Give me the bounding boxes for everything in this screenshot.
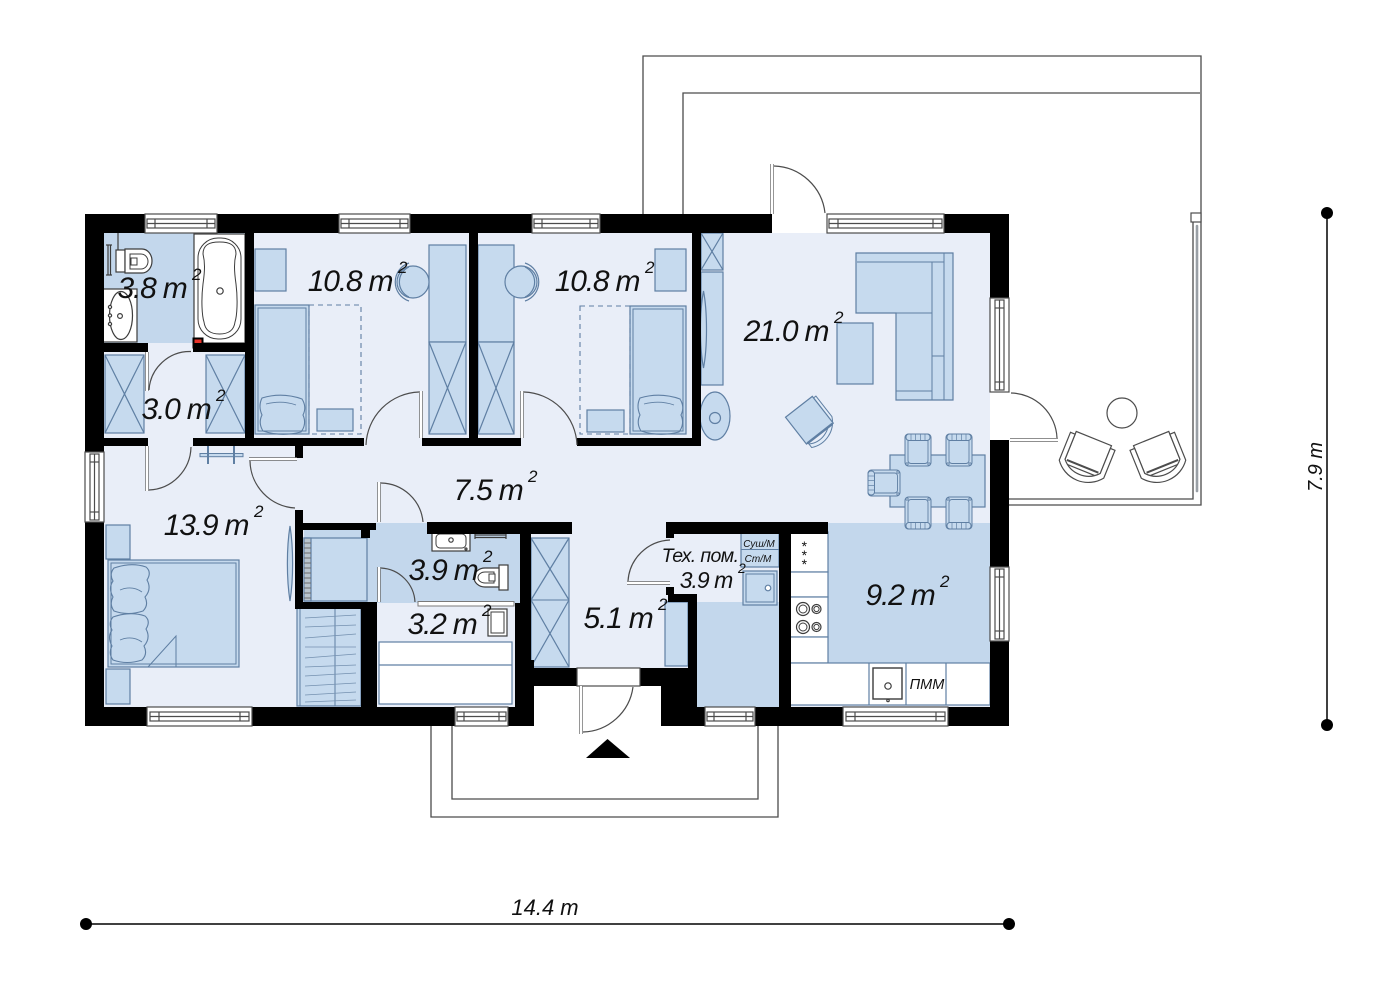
svg-text:7.5 m: 7.5 m [453,474,522,507]
svg-text:3.9 m: 3.9 m [408,554,477,587]
svg-text:14.4 m: 14.4 m [511,895,578,920]
svg-text:9.2 m: 9.2 m [865,579,934,612]
svg-text:Тех. пом.: Тех. пом. [662,545,739,567]
svg-text:2: 2 [527,467,538,486]
svg-text:3.0 m: 3.0 m [141,393,210,426]
svg-text:13.9 m: 13.9 m [164,509,249,542]
svg-text:10.8 m: 10.8 m [555,265,640,298]
svg-text:Суш/М: Суш/М [743,539,775,550]
svg-text:2: 2 [833,308,844,327]
svg-text:Ст/М: Ст/М [745,554,772,565]
svg-text:2: 2 [215,386,226,405]
svg-text:10.8 m: 10.8 m [308,265,393,298]
svg-text:2: 2 [481,601,492,620]
svg-text:2: 2 [253,502,264,521]
svg-text:7.9 m: 7.9 m [1305,442,1327,492]
svg-text:2: 2 [191,265,202,284]
svg-text:2: 2 [644,258,655,277]
svg-text:21.0 m: 21.0 m [743,315,829,348]
svg-text:3.8 m: 3.8 m [117,272,186,305]
svg-text:2: 2 [482,547,493,566]
svg-text:2: 2 [397,258,408,277]
svg-text:ПММ: ПММ [910,677,946,693]
svg-text:*: * [801,556,807,572]
svg-text:2: 2 [939,572,950,591]
svg-text:3.9 m: 3.9 m [680,567,733,593]
svg-text:2: 2 [657,595,668,614]
svg-text:3.2 m: 3.2 m [407,608,476,641]
svg-text:5.1 m: 5.1 m [583,602,652,635]
